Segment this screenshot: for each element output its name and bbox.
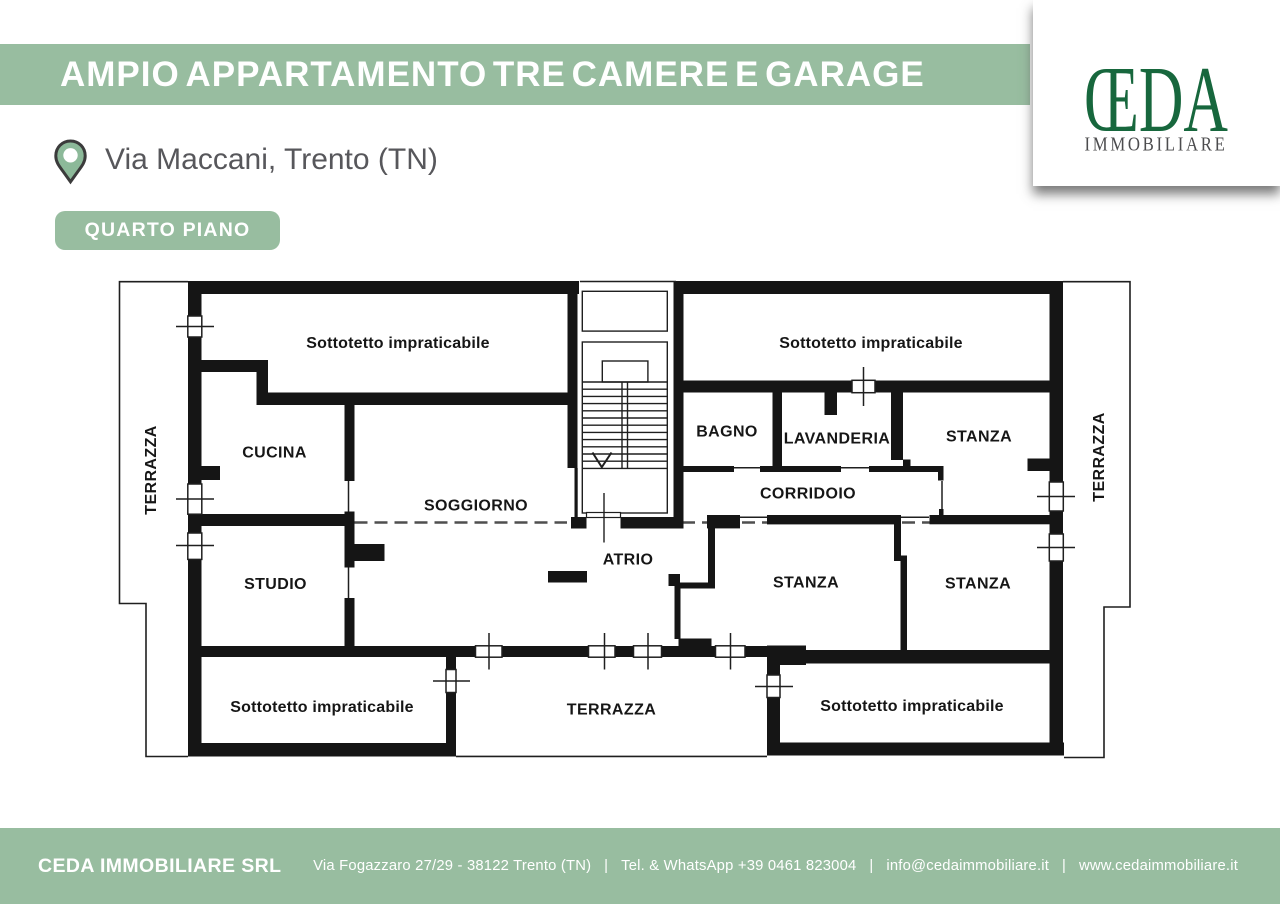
svg-text:Sottotetto impraticabile: Sottotetto impraticabile	[230, 699, 413, 716]
svg-text:STANZA: STANZA	[773, 575, 839, 592]
svg-text:CUCINA: CUCINA	[242, 445, 307, 462]
svg-text:TERRAZZA: TERRAZZA	[567, 702, 656, 719]
svg-text:CORRIDOIO: CORRIDOIO	[760, 486, 856, 503]
svg-text:STANZA: STANZA	[946, 429, 1012, 446]
svg-text:Sottotetto impraticabile: Sottotetto impraticabile	[820, 698, 1003, 715]
svg-text:STUDIO: STUDIO	[244, 576, 307, 593]
svg-text:ATRIO: ATRIO	[603, 552, 654, 569]
svg-text:STANZA: STANZA	[945, 576, 1011, 593]
svg-text:Sottotetto impraticabile: Sottotetto impraticabile	[306, 335, 489, 352]
svg-text:BAGNO: BAGNO	[696, 424, 758, 441]
svg-text:Sottotetto impraticabile: Sottotetto impraticabile	[779, 335, 962, 352]
svg-text:SOGGIORNO: SOGGIORNO	[424, 498, 528, 515]
svg-text:TERRAZZA: TERRAZZA	[143, 425, 160, 514]
svg-text:LAVANDERIA: LAVANDERIA	[784, 431, 891, 448]
svg-text:TERRAZZA: TERRAZZA	[1091, 412, 1108, 501]
